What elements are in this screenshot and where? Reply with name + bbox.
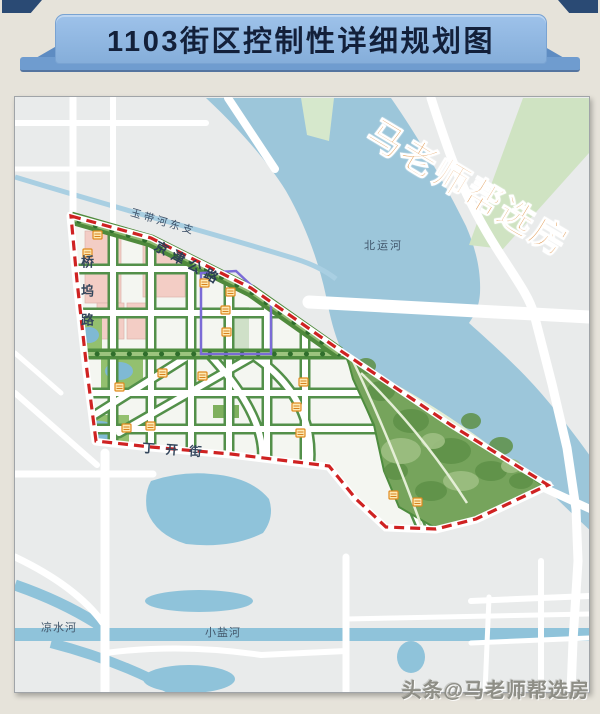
- planning-map: 北运河 玉带河东支 京津公路 桥坞路 丁开街 凉水河 小盐河 马老师帮选房: [14, 96, 590, 693]
- page-title: 1103街区控制性详细规划图: [107, 18, 495, 60]
- watermark-byline: 头条@马老师帮选房: [401, 674, 590, 703]
- banner-corner-right: [558, 0, 598, 13]
- label-liangshui-river: 凉水河: [41, 619, 77, 635]
- label-west-road: 桥坞路: [77, 255, 96, 342]
- banner-plate: 1103街区控制性详细规划图: [55, 14, 547, 64]
- label-xiaoyan-river: 小盐河: [205, 624, 241, 640]
- title-banner: 1103街区控制性详细规划图: [0, 0, 600, 86]
- label-north-canal: 北运河: [364, 237, 403, 253]
- banner-corner-left: [2, 0, 42, 13]
